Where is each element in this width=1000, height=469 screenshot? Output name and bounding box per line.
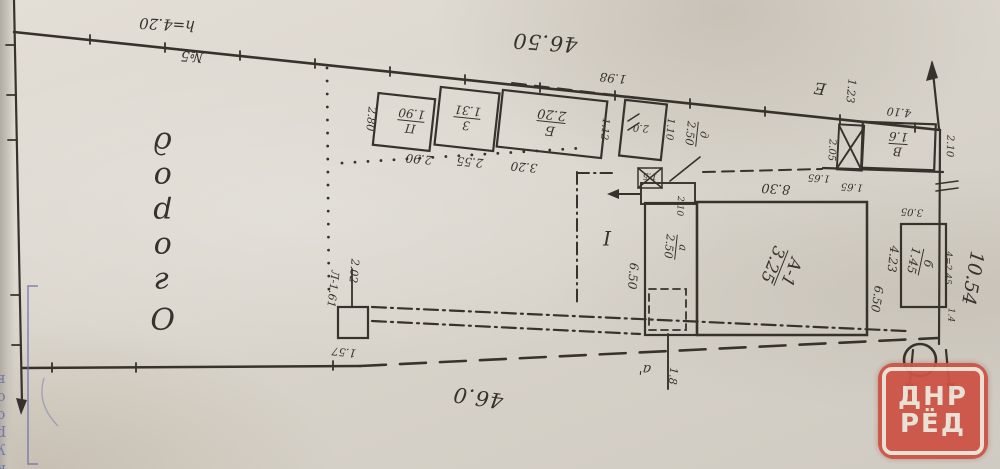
dim-top-note: h=4.20: [139, 15, 195, 33]
label-shed-b: Б 2.20: [535, 106, 567, 138]
dim-shed-z-width: 2.55: [456, 155, 484, 169]
label-shed-n-value: 2.0: [633, 121, 650, 132]
label-shed-e: Е: [813, 79, 827, 96]
north-arrow-icon: [926, 60, 939, 129]
label-garden: Огород: [147, 125, 179, 335]
annex-rect: [645, 203, 697, 335]
dim-porch: 1.8: [667, 367, 679, 385]
shed-b-height: 2.20: [537, 106, 567, 123]
dim-annex-left: 6.50: [626, 262, 640, 290]
dim-tie-2: 1.65: [808, 171, 831, 183]
dim-cellar-mark: 1.5: [643, 170, 658, 180]
cellar-leader-line: [670, 157, 700, 181]
dim-l-marker: 1.57: [331, 345, 357, 359]
shed-p-letter: П: [396, 119, 424, 136]
entrance-arrow-icon: [607, 189, 640, 199]
arrowhead-down-icon: [16, 398, 27, 415]
label-shed-p: П 1.90: [396, 106, 425, 136]
dim-top-length: 46.50: [512, 29, 578, 54]
blue-stamp-marks: [28, 286, 58, 464]
vestibule-rect: [641, 183, 695, 204]
watermark-logo: ДНР РЁД: [878, 363, 988, 459]
shed-v-letter: В: [888, 143, 908, 158]
dim-house-top: 8.30: [761, 181, 791, 196]
utility-line-1: [372, 307, 906, 331]
dim-shed-b-side: 1.12: [598, 117, 610, 140]
utility-line-2: [372, 321, 640, 334]
watermark-line-2: РЁД: [900, 411, 966, 438]
dim-tie-1: 1.65: [841, 180, 864, 192]
dim-shed-p-width: 2.90: [405, 152, 433, 166]
watermark-line-1: ДНР: [898, 384, 968, 411]
shed-e-rect: [837, 124, 864, 170]
dim-shed-b-width: 3.20: [510, 160, 538, 174]
dim-shed-p-side: 2.80: [364, 106, 378, 132]
shed-z-letter: З: [452, 116, 480, 133]
dim-top-note-2: №5: [180, 48, 203, 64]
dim-shed-n-side: 1.10: [663, 117, 675, 140]
annex-value: 2.50: [662, 234, 676, 260]
dim-fence-gap: 3.05: [901, 205, 924, 217]
label-shed-b2: б 1.45: [905, 246, 937, 278]
shed-p-height: 1.90: [398, 106, 426, 122]
dim-house-right-1: 4.23: [885, 245, 900, 273]
dotted-boundary-vertical: [327, 68, 329, 302]
fence-bottom: [22, 338, 938, 372]
watermark-frame: ДНР РЁД: [882, 367, 984, 455]
cellar-value: 2.50: [683, 121, 697, 147]
dim-annex-top: 2.10: [674, 196, 684, 216]
dim-bottom-length: 46.0: [451, 383, 504, 411]
scanned-site-plan: h=4.20 №5 46.50 1.98 Огород I 46.0 Л-1.6…: [0, 0, 1000, 469]
cellar-letter: д: [695, 122, 710, 148]
dim-shed-v-top: 4.10: [886, 105, 912, 119]
dim-shed-e-height: 1.23: [844, 78, 857, 103]
dim-right-note: 4=2.45: [942, 251, 952, 285]
shed-v-height: 1.6: [889, 130, 909, 144]
label-porch: а': [638, 361, 651, 376]
stamp-text: курсов: [0, 371, 10, 469]
label-cellar: д 2.50: [683, 121, 710, 148]
dim-shed-e-side: 2.05: [825, 139, 836, 162]
fence-left: [6, 0, 27, 415]
dim-shed-v-side: 2.10: [944, 135, 955, 158]
dim-right-note-2: 1.4: [945, 308, 954, 323]
shed-z-height: 1.31: [454, 103, 482, 119]
annex-letter: а: [674, 235, 689, 261]
dim-seg-198: 1.98: [599, 71, 627, 86]
label-shed-z: З 1.31: [452, 103, 481, 133]
label-shed-v: В 1.6: [888, 130, 909, 158]
label-courtyard: I: [603, 228, 611, 248]
porch-dashed-rect: [649, 289, 686, 330]
dim-l-marker-h: 2.02: [347, 258, 360, 283]
dashed-line-mid: [703, 169, 822, 172]
shed-b-letter: Б: [535, 120, 565, 138]
label-annex: а 2.50: [662, 234, 689, 261]
dashed-line-upper: [512, 83, 648, 99]
